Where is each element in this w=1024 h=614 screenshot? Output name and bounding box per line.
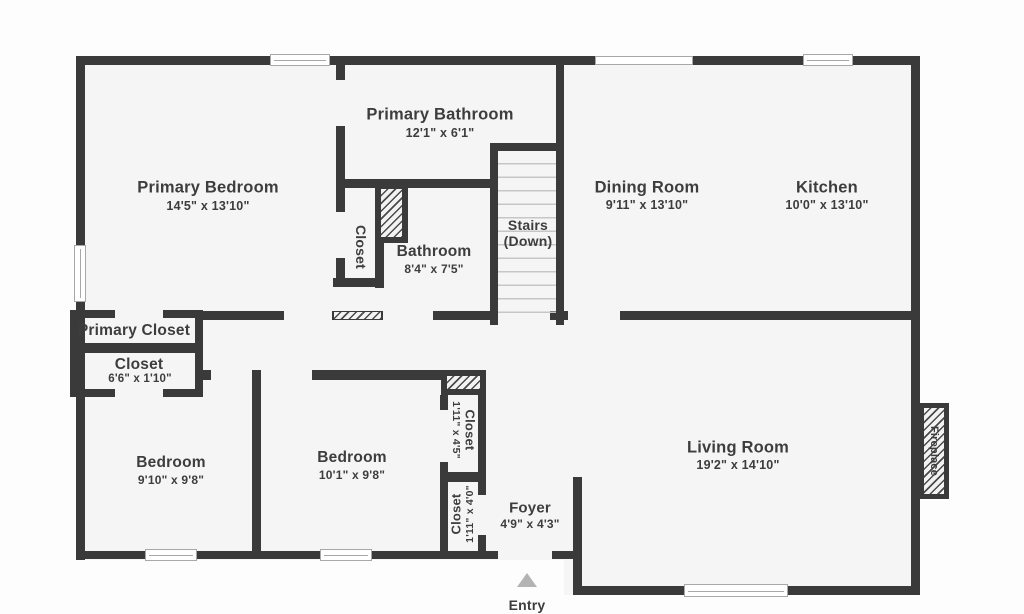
room-dims-living-room: 19'2" x 14'10" bbox=[696, 458, 779, 472]
room-label-primary-closet: Primary Closet bbox=[78, 322, 190, 340]
room-dims-dining-room: 9'11" x 13'10" bbox=[606, 198, 688, 212]
wall-segment bbox=[70, 343, 203, 353]
fireplace-label: Fireplace bbox=[928, 426, 940, 476]
wall-segment bbox=[312, 370, 443, 380]
room-dims-bedroom-1: 9'10" x 9'8" bbox=[138, 473, 204, 487]
room-label-closet-40: Closet bbox=[449, 494, 464, 535]
floor-plan: Primary Bedroom 14'5" x 13'10" Primary B… bbox=[0, 0, 1024, 614]
room-dims-kitchen: 10'0" x 13'10" bbox=[785, 198, 868, 212]
room-label-foyer: Foyer bbox=[509, 500, 551, 517]
room-dims-bathroom: 8'4" x 7'5" bbox=[404, 262, 463, 276]
room-dims-bedroom-2: 10'1" x 9'8" bbox=[319, 468, 385, 482]
wall-segment bbox=[336, 126, 345, 212]
window bbox=[803, 54, 853, 66]
wall-segment bbox=[195, 311, 284, 320]
wall-segment bbox=[478, 535, 486, 552]
wall-segment bbox=[195, 370, 211, 380]
window bbox=[595, 56, 693, 65]
wall-segment bbox=[556, 56, 564, 325]
wall-segment bbox=[76, 56, 920, 65]
room-dims-primary-bedroom: 14'5" x 13'10" bbox=[166, 199, 249, 213]
closet-hatch bbox=[447, 376, 480, 389]
wall-segment bbox=[911, 56, 920, 595]
room-label-bedroom-2: Bedroom bbox=[317, 449, 386, 467]
wall-segment bbox=[76, 551, 498, 559]
stairs-label-line1: Stairs bbox=[504, 217, 553, 233]
wall-segment bbox=[490, 143, 498, 325]
room-dims-closet-45: 1'11" x 4'5" bbox=[450, 401, 462, 459]
room-label-living-room: Living Room bbox=[687, 439, 789, 458]
room-dims-closet-40: 1'11" x 4'0" bbox=[464, 485, 476, 543]
wall-segment bbox=[252, 370, 261, 559]
stairs-label-line2: (Down) bbox=[504, 233, 553, 249]
wall-segment bbox=[552, 551, 573, 559]
wall-segment bbox=[70, 389, 115, 397]
wall-segment bbox=[76, 56, 85, 560]
entry-arrow-icon bbox=[517, 573, 537, 587]
room-dims-closet-66: 6'6" x 1'10" bbox=[108, 373, 172, 385]
shower-hatch bbox=[381, 189, 402, 237]
room-label-closet-45: Closet bbox=[463, 410, 478, 451]
room-label-primary-bathroom: Primary Bathroom bbox=[366, 106, 513, 125]
wall-segment bbox=[620, 311, 911, 320]
room-label-closet-66: Closet bbox=[115, 356, 164, 374]
room-label-bathroom: Bathroom bbox=[397, 243, 472, 261]
wall-segment bbox=[433, 311, 490, 320]
wall-segment bbox=[70, 310, 78, 397]
window bbox=[684, 584, 788, 597]
wall-segment bbox=[440, 395, 448, 410]
wall-segment bbox=[163, 389, 203, 397]
room-label-hall-closet: Closet bbox=[353, 225, 369, 269]
wall-segment bbox=[336, 179, 490, 188]
window bbox=[320, 549, 372, 561]
window bbox=[270, 54, 330, 66]
wall-segment bbox=[333, 278, 378, 287]
room-label-stairs: Stairs (Down) bbox=[504, 217, 553, 249]
window bbox=[74, 245, 86, 302]
room-label-dining-room: Dining Room bbox=[595, 179, 700, 198]
wall-segment bbox=[490, 143, 564, 151]
entry-label: Entry bbox=[509, 597, 546, 613]
wall-segment bbox=[573, 477, 582, 595]
room-label-bedroom-1: Bedroom bbox=[136, 454, 205, 472]
wall-segment bbox=[336, 56, 345, 80]
window bbox=[145, 549, 197, 561]
room-dims-foyer: 4'9" x 4'3" bbox=[500, 517, 559, 531]
room-label-primary-bedroom: Primary Bedroom bbox=[137, 179, 278, 198]
wall-hatch-detail bbox=[334, 312, 381, 319]
room-dims-primary-bathroom: 12'1" x 6'1" bbox=[406, 126, 475, 140]
room-label-kitchen: Kitchen bbox=[796, 179, 858, 198]
